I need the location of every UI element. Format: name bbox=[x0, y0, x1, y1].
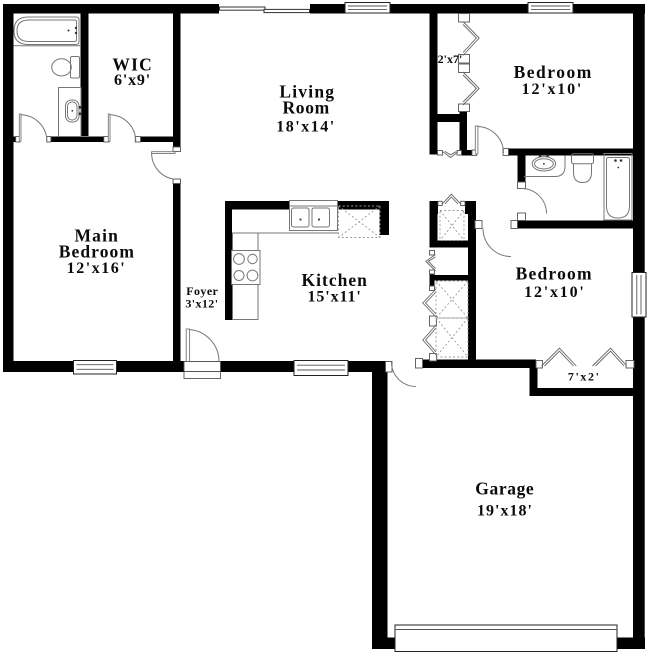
svg-text:Bedroom: Bedroom bbox=[59, 242, 135, 262]
svg-text:7'x2': 7'x2' bbox=[568, 370, 601, 384]
svg-text:15'x11': 15'x11' bbox=[307, 288, 361, 305]
svg-text:12'x16': 12'x16' bbox=[67, 260, 126, 277]
svg-text:18'x14': 18'x14' bbox=[276, 119, 335, 136]
svg-text:2'x7': 2'x7' bbox=[438, 52, 463, 66]
svg-text:Room: Room bbox=[282, 98, 330, 118]
svg-text:Kitchen: Kitchen bbox=[302, 270, 368, 290]
svg-text:Bedroom: Bedroom bbox=[514, 62, 593, 82]
svg-text:6'x9': 6'x9' bbox=[114, 72, 151, 89]
svg-text:3'x12': 3'x12' bbox=[185, 296, 218, 310]
svg-text:Bedroom: Bedroom bbox=[516, 263, 593, 283]
svg-text:12'x10': 12'x10' bbox=[524, 284, 586, 301]
svg-text:12'x10': 12'x10' bbox=[522, 81, 584, 98]
svg-text:Garage: Garage bbox=[475, 479, 534, 499]
svg-text:19'x18': 19'x18' bbox=[477, 502, 533, 519]
